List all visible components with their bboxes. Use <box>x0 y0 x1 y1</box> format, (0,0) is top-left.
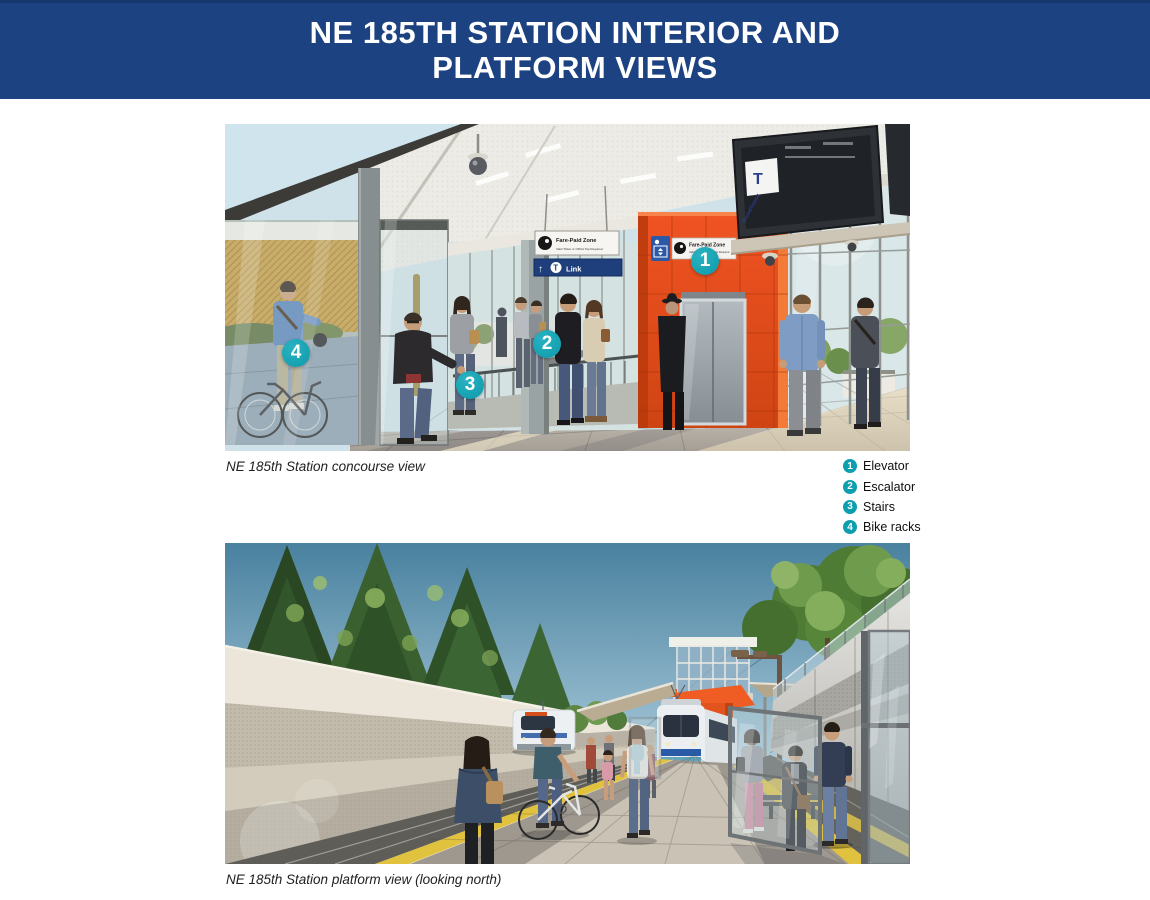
marker-4-bike-racks: 4 <box>282 339 310 367</box>
platform-rendering <box>225 543 910 864</box>
platform-caption: NE 185th Station platform view (looking … <box>226 872 501 887</box>
marker-2-escalator: 2 <box>533 330 561 358</box>
page-title: NE 185TH STATION INTERIOR AND PLATFORM V… <box>0 3 1150 85</box>
right-glass-shelter <box>861 631 910 864</box>
title-line-1: NE 185TH STATION INTERIOR AND <box>0 15 1150 50</box>
legend-dot-2: 2 <box>843 480 857 494</box>
platform-figure <box>225 543 910 864</box>
column-left <box>358 168 380 445</box>
svg-text:T: T <box>753 171 763 188</box>
concourse-caption: NE 185th Station concourse view <box>226 459 425 474</box>
concourse-figure: Fare-Paid Zone Valid Ticket or ORCA Tap … <box>225 124 910 451</box>
marker-1-elevator: 1 <box>691 247 719 275</box>
legend-item-bike-racks: 4 Bike racks <box>843 517 921 537</box>
fare-paid-title: Fare-Paid Zone <box>556 238 596 244</box>
marker-3-stairs: 3 <box>456 371 484 399</box>
legend-dot-1: 1 <box>843 459 857 473</box>
legend-dot-3: 3 <box>843 500 857 514</box>
legend: 1 Elevator 2 Escalator 3 Stairs 4 Bike r… <box>843 456 921 538</box>
concourse-rendering: Fare-Paid Zone Valid Ticket or ORCA Tap … <box>225 124 910 451</box>
legend-item-escalator: 2 Escalator <box>843 476 921 496</box>
link-label: Link <box>566 265 582 274</box>
page: NE 185TH STATION INTERIOR AND PLATFORM V… <box>0 0 1150 900</box>
title-banner: NE 185TH STATION INTERIOR AND PLATFORM V… <box>0 0 1150 99</box>
legend-dot-4: 4 <box>843 520 857 534</box>
legend-item-stairs: 3 Stairs <box>843 497 921 517</box>
legend-item-elevator: 1 Elevator <box>843 456 921 476</box>
elevator-doors <box>681 292 745 424</box>
link-sign: ↑ T Link <box>534 259 622 276</box>
elevator-blue-sign <box>651 236 670 261</box>
orca-logo-icon <box>538 236 552 250</box>
link-arrow-icon: ↑ <box>538 264 543 275</box>
title-line-2: PLATFORM VIEWS <box>0 50 1150 85</box>
bike-storage-bay <box>225 220 358 445</box>
fare-paid-sign: Fare-Paid Zone Valid Ticket or ORCA Tap … <box>535 231 619 255</box>
svg-text:T: T <box>553 264 558 273</box>
fare-paid-subtitle: Valid Ticket or ORCA Tap Required <box>556 247 603 251</box>
